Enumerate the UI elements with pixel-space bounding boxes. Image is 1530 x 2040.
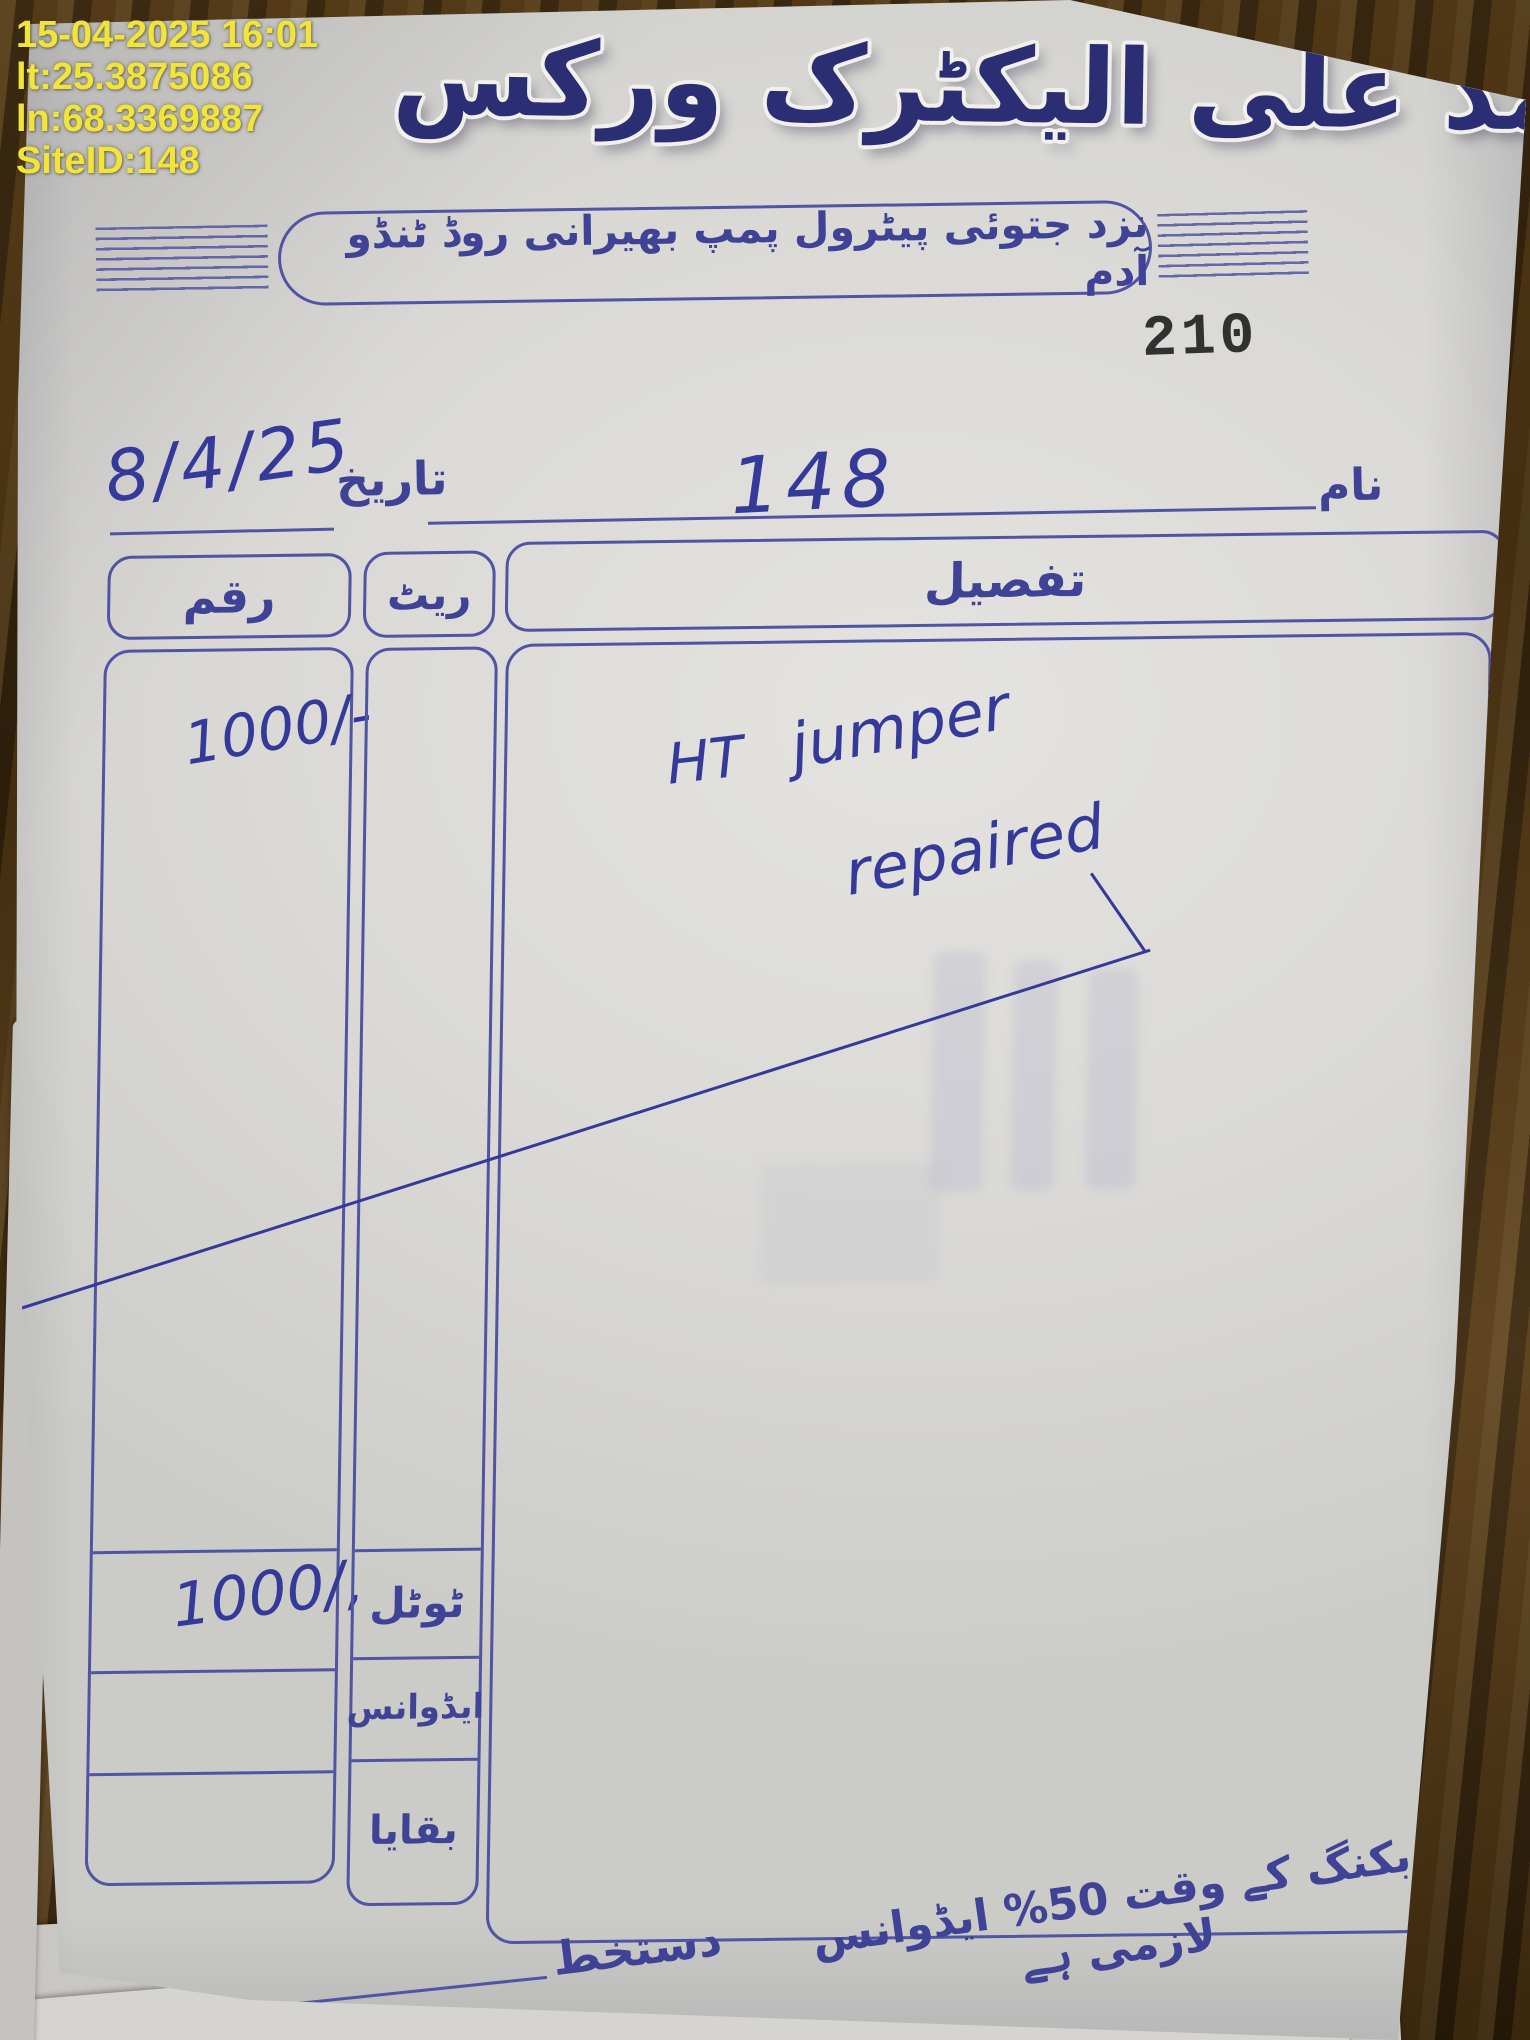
ink-showthrough (930, 951, 986, 1192)
ink-showthrough (1010, 960, 1058, 1191)
divider-line (93, 1548, 337, 1554)
divider-line (91, 1668, 335, 1674)
ink-showthrough (759, 1162, 941, 1284)
rate-column-header: ریٹ (363, 550, 496, 638)
address-capsule: نزد جتوئی پیٹرول پمپ بھیرانی روڈ ٹنڈو آد… (277, 200, 1152, 306)
total-label: ٹوٹل (353, 1548, 481, 1658)
details-word-1: HT (664, 724, 746, 797)
details-word-2: jumper (785, 670, 1014, 783)
amount-column-header: رقم (107, 553, 352, 640)
date-underline (110, 528, 334, 536)
advance-label: ایڈوانس (352, 1656, 480, 1760)
date-value-handwritten: 8/4/25 (100, 403, 358, 519)
total-value-handwritten: 1000/, (169, 1547, 367, 1642)
divider-line (89, 1770, 333, 1776)
details-column-header: تفصیل (505, 530, 1506, 632)
address-text: نزد جتوئی پیٹرول پمپ بھیرانی روڈ ٹنڈو آد… (280, 199, 1149, 307)
amount-header-label: رقم (110, 556, 349, 637)
details-column-body: HT jumper repaired (486, 632, 1492, 1944)
amount-value-handwritten: 1000/- (180, 680, 376, 779)
photo-frame: محمد علی الیکٹرک ورکس نزد جتوئی پیٹرول پ… (0, 0, 1530, 2040)
details-header-label: تفصیل (508, 533, 1503, 629)
details-word-3: repaired (840, 790, 1109, 910)
name-label: نام (1318, 459, 1384, 511)
ink-showthrough (1085, 969, 1138, 1190)
overlay-site-id: SiteID:148 (16, 140, 318, 182)
amount-column-body: 1000/- 1000/, (85, 647, 354, 1886)
serial-number: 210 (1141, 304, 1260, 373)
overlay-datetime: 15-04-2025 16:01 (16, 14, 318, 56)
pen-flourish (1090, 872, 1146, 952)
overlay-longitude: ln:68.3369887 (16, 98, 318, 140)
receipt-paper: محمد علی الیکٹرک ورکس نزد جتوئی پیٹرول پ… (0, 0, 1530, 2040)
camera-overlay: 15-04-2025 16:01 lt:25.3875086 ln:68.336… (16, 14, 318, 182)
date-label: تاریخ (336, 451, 448, 507)
overlay-latitude: lt:25.3875086 (16, 56, 318, 98)
decorative-lines-left (95, 225, 268, 294)
decorative-lines-right (1157, 210, 1309, 280)
rate-header-label: ریٹ (366, 553, 493, 635)
rate-column-body: ٹوٹل ایڈوانس بقایا (346, 646, 498, 1906)
balance-label: بقایا (349, 1758, 477, 1904)
